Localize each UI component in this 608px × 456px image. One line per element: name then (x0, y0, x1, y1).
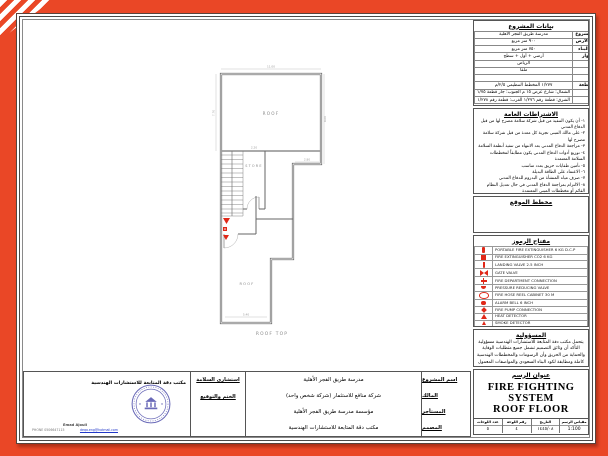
legend-table: PORTABLE FIRE EXTINGUISHER 6 KG D.C.P FI… (475, 246, 588, 327)
heat-detector-icon (481, 314, 487, 319)
legend-row: PORTABLE FIRE EXTINGUISHER 6 KG D.C.P (475, 246, 588, 254)
alarm-bell-icon (481, 301, 486, 306)
field-value: ٩٠٠ متر مربع (475, 38, 573, 45)
responsibility-text: يتحمل مكتب دقة المتابعة للاستشارات الهند… (474, 340, 588, 368)
safety-consultant-label: استشاري السلامة (196, 377, 239, 383)
project-value: مؤسسة مدرسة طريق الفجر الأهلية (246, 404, 421, 420)
fire-extinguisher-dcp-icon (482, 247, 485, 253)
consultant-office-box: مكتب دقة المتابعة للاستشارات الهندسية (24, 372, 191, 436)
responsibility-panel: المسؤولية يتحمل مكتب دقة المتابعة للاستش… (473, 329, 589, 367)
consultant-labels: استشاري السلامة الختم والتوقيع (191, 372, 246, 436)
gate-valve-icon (480, 270, 488, 276)
note-item: ٢- على مالك المبنى تجربة كل معدة من قبل … (477, 131, 585, 144)
info-label: مقياس الرسم (560, 419, 588, 426)
contact-block: Emad Ajouli PHONE 0506647115 deqa.eng@ho… (32, 423, 118, 432)
project-value: مكتب دقة المتابعة للاستشارات الهندسية (246, 420, 421, 436)
svg-text:2.80: 2.80 (304, 158, 310, 162)
table-row: الحدود الشمال: شارع عرض ١٥ م الجنوب: جار… (475, 89, 590, 96)
field-value: ملقا (475, 67, 573, 74)
legend-label: FIRE EXTINGUISHER CO2 6 KG (493, 254, 588, 261)
field-label: اسم المشروع (573, 31, 589, 38)
fire-pump-icon (481, 307, 487, 313)
bottom-title-block: مكتب دقة المتابعة للاستشارات الهندسية (23, 371, 471, 437)
stamp-building-icon (139, 397, 163, 409)
field-label: المدينة (573, 60, 589, 67)
sheet-info-cell: التاريخ ١٤٤٥/٠٨ (531, 419, 560, 433)
project-label: المصمم (422, 420, 470, 436)
project-label: المستأجر (422, 404, 470, 420)
legend-label: LANDING VALVE 2.5 INCH (493, 261, 588, 269)
field-label: الحدود (573, 89, 589, 96)
project-data-table: اسم المشروع مدرسة طريق الفجر الأهلية مسا… (475, 31, 590, 104)
note-item: ٣- مراجعة الدفاع المدني بعد الانتهاء من … (477, 144, 585, 150)
engineer-name: Emad Ajouli (32, 423, 118, 427)
title-block-column: بيانات المشروع اسم المشروع مدرسة طريق ال… (473, 20, 589, 437)
table-row: التاريخ الشرق: قطعة رقم ١/٢٧٦ الغرب: قطع… (475, 97, 590, 104)
general-notes-panel: الاشتراطات العامة ١- أن يكون التنفيذ من … (473, 108, 589, 194)
sheet-info-cell: عدد اللوحات ٥ (474, 419, 502, 433)
store-label: STORE (245, 164, 262, 168)
legend-row: FIRE DEPARTMENT CONNECTION (475, 277, 588, 285)
legend-header: مفتاح الرموز (474, 236, 588, 246)
info-value: ٤ (503, 426, 531, 433)
svg-text:9.00: 9.00 (323, 116, 327, 122)
roof-label-upper: ROOF (263, 111, 280, 116)
legend-label: GATE VALVE (493, 269, 588, 277)
site-plan-header: مخطط الموقع (474, 197, 588, 207)
staircase (221, 151, 243, 216)
legend-label: FIRE DEPARTMENT CONNECTION (493, 277, 588, 285)
info-label: التاريخ (532, 419, 560, 426)
general-notes-header: الاشتراطات العامة (474, 109, 588, 119)
store-room-walls (243, 151, 265, 209)
legend-row: ALARM BELL 6 INCH (475, 300, 588, 307)
email-link[interactable]: deqa.eng@hotmail.com (80, 428, 118, 432)
sheet-info-cell: مقياس الرسم 1:100 (559, 419, 588, 433)
drawing-title-line2: ROOF FLOOR (474, 404, 588, 415)
field-value: الرياض (475, 60, 573, 67)
stamp-signature-label: الختم والتوقيع (200, 394, 236, 400)
phone-number: PHONE 0506647115 (32, 428, 65, 432)
note-item: ٤- توزيع أدوات الدفاع المدني يكون مطابقا… (477, 151, 585, 164)
info-value: 1:100 (560, 426, 588, 433)
svg-text:5.40: 5.40 (243, 313, 249, 317)
field-value: الشمال: شارع عرض ١٥ م الجنوب: جار قطعة ١… (475, 89, 573, 96)
field-label: رقم القطعة (573, 82, 589, 89)
info-label: عدد اللوحات (474, 419, 502, 426)
svg-text:2.20: 2.20 (251, 145, 257, 149)
floor-plan: ROOF STORE ROOF ROOF TOP 11.007.709.002.… (203, 63, 363, 351)
table-row: رقم القطعة ١/٢٧٧ المخطط التنظيمي ٢/٥/م (475, 82, 590, 89)
sheet-info-cell: رقم اللوحة ٤ (502, 419, 531, 433)
site-plan-area (474, 207, 588, 231)
responsibility-header: المسؤولية (474, 330, 588, 340)
legend-label: FIRE HOSE REEL CABINET 30 M (493, 291, 588, 300)
notes-list: ١- أن يكون التنفيذ من قبل شركة سلامة مصر… (474, 119, 588, 195)
roof-top-caption: ROOF TOP (256, 331, 288, 337)
legend-row: LANDING VALVE 2.5 INCH (475, 261, 588, 269)
project-label: المالك (422, 388, 470, 404)
note-item: ٨- الالتزام بمراجعة الدفاع المدني في حال… (477, 183, 585, 194)
field-value: ١/٢٧٧ المخطط التنظيمي ٢/٥/م (475, 82, 573, 89)
field-label: مساحة البناء (573, 46, 589, 53)
legend-label: PORTABLE FIRE EXTINGUISHER 6 KG D.C.P (493, 246, 588, 254)
field-label: الشارع (573, 75, 589, 82)
note-item: ١- أن يكون التنفيذ من قبل شركة سلامة مصر… (477, 119, 585, 132)
corridor-walls (224, 196, 293, 248)
field-label: التاريخ (573, 97, 589, 104)
project-data-header: بيانات المشروع (474, 21, 588, 31)
drawing-sheet-canvas: ROOF STORE ROOF ROOF TOP 11.007.709.002.… (0, 0, 608, 456)
table-row: عدد الأدوار أرضي + أول + سطح (475, 53, 590, 60)
project-labels: اسم المشروعالمالكالمستأجرالمصمم (422, 372, 470, 436)
table-row: مساحة البناء ٧٥٠ متر مربع (475, 46, 590, 53)
project-label: اسم المشروع (422, 372, 470, 388)
legend-panel: مفتاح الرموز PORTABLE FIRE EXTINGUISHER … (473, 235, 589, 327)
field-label: الحي (573, 67, 589, 74)
legend-row: FIRE HOSE REEL CABINET 30 M (475, 291, 588, 300)
project-data-panel: بيانات المشروع اسم المشروع مدرسة طريق ال… (473, 20, 589, 106)
table-row: اسم المشروع مدرسة طريق الفجر الأهلية (475, 31, 590, 38)
project-value: شركة منافع للاستثمار (شركة شخص واحد) (246, 388, 421, 404)
table-row: المدينة الرياض (475, 60, 590, 67)
field-value: مدرسة طريق الفجر الأهلية (475, 31, 573, 38)
drawing-title-line1: FIRE FIGHTING SYSTEM (474, 382, 588, 404)
table-row: الحي ملقا (475, 67, 590, 74)
drawing-title-header: عنوان الرسم (474, 370, 588, 380)
paper-sheet: ROOF STORE ROOF ROOF TOP 11.007.709.002.… (16, 13, 596, 444)
drawing-title-panel: عنوان الرسم FIRE FIGHTING SYSTEM ROOF FL… (473, 369, 589, 435)
svg-text:11.00: 11.00 (267, 65, 275, 69)
field-value (475, 75, 573, 82)
project-values: مدرسة طريق الفجر الأهليةشركة منافع للاست… (246, 372, 422, 436)
info-value: ١٤٤٥/٠٨ (532, 426, 560, 433)
info-value: ٥ (474, 426, 502, 433)
legend-label: ALARM BELL 6 INCH (493, 300, 588, 307)
pressure-reducing-valve-icon (481, 286, 486, 289)
field-value: ٧٥٠ متر مربع (475, 46, 573, 53)
legend-label: HEAT DETECTOR (493, 313, 588, 320)
sheet-info-table: مقياس الرسم 1:100 التاريخ ١٤٤٥/٠٨ رقم ال… (474, 418, 588, 433)
fire-extinguisher-co2-icon (481, 255, 486, 260)
table-row: الشارع (475, 75, 590, 82)
fire-equipment-symbols (223, 218, 230, 240)
legend-row: FIRE EXTINGUISHER CO2 6 KG (475, 254, 588, 261)
svg-text:7.70: 7.70 (211, 110, 215, 116)
smoke-detector-icon (482, 321, 486, 325)
field-label: مساحة الأرض (573, 38, 589, 45)
site-plan-panel: مخطط الموقع (473, 196, 589, 233)
info-label: رقم اللوحة (503, 419, 531, 426)
engineering-office-stamp (130, 383, 172, 425)
fire-hose-reel-icon (479, 292, 489, 299)
field-value: أرضي + أول + سطح (475, 53, 573, 60)
fire-department-connection-icon (481, 278, 487, 284)
roof-label-lower: ROOF (239, 282, 254, 286)
table-row: مساحة الأرض ٩٠٠ متر مربع (475, 38, 590, 45)
fire-hose-cabinet-icon (223, 218, 230, 224)
field-value: الشرق: قطعة رقم ١/٢٧٦ الغرب: قطعة رقم ١/… (475, 97, 573, 104)
legend-row: GATE VALVE (475, 269, 588, 277)
project-value: مدرسة طريق الفجر الأهلية (246, 372, 421, 388)
field-label: عدد الأدوار (573, 53, 589, 60)
landing-valve-icon (483, 262, 485, 268)
legend-row: HEAT DETECTOR (475, 313, 588, 320)
